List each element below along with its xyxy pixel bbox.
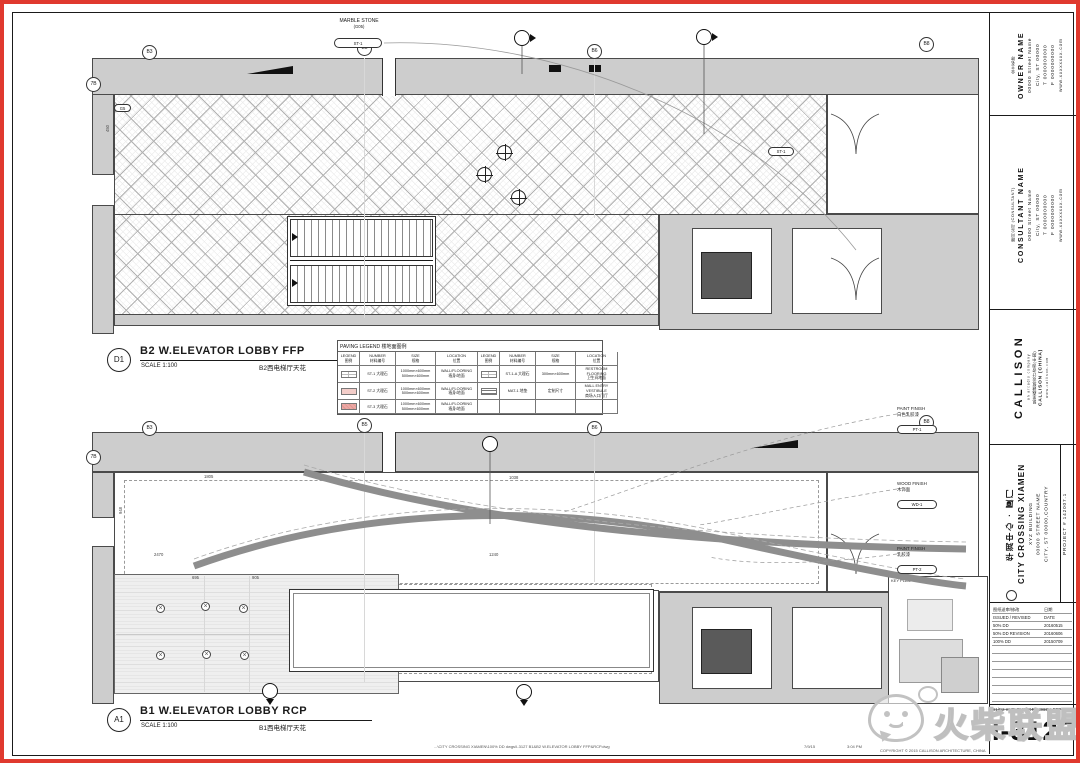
legend-header: LOCATION位置 [576,352,618,366]
floor-finish-tag: ST-1 [768,147,794,156]
section-marker [482,436,498,452]
vestibule-room [827,94,979,214]
legend-empty [500,400,536,414]
revision-row-empty [992,646,1072,654]
revision-row-empty [992,670,1072,678]
marble-note-line2: (G05) [304,24,414,29]
light-fixture-icon: × [156,651,165,660]
grid-bubble: B6 [587,44,602,59]
finish-tag-note: PAINT FINISH白色乳胶漆 [897,406,925,417]
revision-header-cn: 图纸送审/修改日期 [992,606,1072,614]
legend-swatch [478,383,500,400]
revision-row-empty [992,654,1072,662]
light-fixture-icon: × [201,602,210,611]
legend-number: ST-2 大理石 [360,383,396,400]
hatched-floor [114,94,827,216]
legend-size: 1000mm×600mm 500mm×600mm [396,400,436,414]
revision-row-empty [992,694,1072,702]
legend-number: MAT-1 地垫 [500,383,536,400]
elevation-marker [477,167,492,182]
elevator-door [549,65,561,72]
shaft-room [792,228,882,314]
section-marker [514,30,530,46]
legend-empty [536,400,576,414]
grid-line [364,58,365,318]
copyright: COPYRIGHT © 2015 CALLISON ARCHITECTURE, … [880,748,986,753]
section-marker-arrow [530,34,540,42]
plot-time: 3:04 PM [847,744,862,749]
project-number-block: PROJECT # 142007.1 [1062,450,1074,598]
legend-size: 300mm×600mm [536,366,576,383]
revision-row: 50% DD20160515 [992,622,1072,630]
file-path: ...\CITY CROSSING XIAMEN\100% DD dwgs\I-… [434,744,610,749]
revision-header-en: ISSUED / REVISEDDATE [992,614,1072,622]
drawing-subtitle-cn: B2西电梯厅天花 [259,362,306,372]
door-leaf [247,66,293,74]
wall-finish-tag: G5 [114,104,131,112]
grid-bubble: B3 [142,45,157,60]
ceiling-dashed-border [124,480,819,584]
finish-tag-capsule: PT-1 [897,425,937,434]
grid-bubble: B6 [587,421,602,436]
legend-empty [576,400,618,414]
section-marker-arrow [520,700,528,710]
shaft-pit [701,629,752,674]
north-arrow-icon [1006,590,1017,601]
sheet-number: I-3127 [992,716,1075,747]
legend-header: LOCATION位置 [436,352,478,366]
legend-table: LEGEND图例 NUMBER材料编号 SIZE规格 LOCATION位置 LE… [338,352,602,414]
sheet-title: B1/B2 W.ELEVATOR LOBBY FFP&RCP [992,707,1074,712]
section-marker-arrow [266,699,274,709]
titleblock-rule [989,115,1076,116]
marble-note: MARBLE STONE (G05) [304,18,414,29]
legend-empty [478,400,500,414]
plan-b2-ffp [92,48,979,340]
shaft-room [792,607,882,689]
legend-header: LEGEND图例 [478,352,500,366]
stair-direction-arrow [292,233,302,241]
legend-number: ST-3 大理石 [360,400,396,414]
opening-jamb [382,432,396,472]
stair-treads [290,219,433,257]
revision-table: 图纸送审/修改日期 ISSUED / REVISEDDATE 50% DD201… [992,606,1072,710]
revision-row: 100% DD20150709 [992,638,1072,646]
legend-size: 1000mm×600mm 500mm×600mm [396,383,436,400]
legend-location: RESTROOM FLOORING 卫生间地面 [576,366,618,383]
titleblock-rule [989,602,1076,603]
legend-location: WALL/FLOORING 墙身/地面 [436,366,478,383]
legend-size: 1000mm×600mm 500mm×600mm [396,366,436,383]
legend-header: SIZE规格 [396,352,436,366]
legend-number: ST-1 大理石 [360,366,396,383]
dimension: 695 [192,575,199,580]
dimension: 948 [118,507,123,514]
drawing-callout: A1 [107,708,131,732]
legend-number: ST-1-A 大理石 [500,366,536,383]
titleblock-rule [1060,444,1061,602]
legend-header: NUMBER材料编号 [500,352,536,366]
legend-location: WALL/FLOORING 墙身/地面 [436,400,478,414]
wall [114,314,659,326]
finish-tag-note: WOOD FINISH木饰面 [897,481,927,492]
section-marker [262,683,278,699]
stair [287,216,436,306]
legend-swatch [338,383,360,400]
elevator-door [589,65,601,72]
finish-tag-capsule: PT-2 [897,565,937,574]
door-opening [92,174,114,206]
stair-direction-arrow [292,279,302,287]
plot-date: 7/9/15 [804,744,815,749]
project-block: 华润中心 · 厦门 CITY CROSSING XIAMEN XYZ BUILD… [1004,450,1056,598]
legend-header: SIZE规格 [536,352,576,366]
dimension: 450 [105,125,110,132]
grid-bubble: B8 [919,37,934,52]
key-plan-shape [907,599,953,631]
grid-bubble: 7B [86,450,101,465]
drawing-subtitle-cn: B1西电梯厅天花 [259,722,306,732]
section-marker-arrow [712,33,722,41]
legend-location: WALL/FLOORING 墙身/地面 [436,383,478,400]
key-plan: KEY PLAN [888,576,988,704]
consultant-block: 顾问公司 (CONSULTANT) CONSULTANT NAME 0000 S… [1010,126,1072,304]
grid-bubble: B5 [357,418,372,433]
grid-bubble: B3 [142,421,157,436]
revision-row-empty [992,686,1072,694]
finish-tag-capsule: WD-1 [897,500,937,509]
shaft-pit [701,252,752,299]
light-fixture-icon: × [240,651,249,660]
drawing-sheet: B3 B5 B6 B8 7B MARBLE STONE (G05) ST-1 S… [0,0,1080,763]
drawing-scale: SCALE 1:100 [141,723,177,729]
wall [92,58,979,96]
drawing-title: B1 W.ELEVATOR LOBBY RCP [140,705,307,717]
wall [92,472,114,704]
revision-row-empty [992,662,1072,670]
titleblock-rule [989,309,1076,310]
callison-logo: CALLISON [1012,319,1026,435]
drawing-callout: D1 [107,348,131,372]
legend-header: NUMBER材料编号 [360,352,396,366]
key-plan-shape [941,657,979,693]
key-plan-label: KEY PLAN [889,577,987,584]
paving-legend: PAVING LEGEND 楼地面图例 LEGEND图例 NUMBER材料编号 … [337,340,603,415]
dimension: 2470 [154,552,163,557]
escalator-well [289,589,654,672]
legend-swatch [338,400,360,414]
plan-b1-rcp: × × × × × × [92,422,979,706]
section-marker [516,684,532,700]
legend-size: 定制尺寸 [536,383,576,400]
light-fixture-icon: × [202,650,211,659]
legend-swatch [478,366,500,383]
marble-tag: ST-1 [334,38,382,48]
elevation-marker [511,190,526,205]
revision-row-empty [992,678,1072,686]
dimension: 905 [252,575,259,580]
section-marker [696,29,712,45]
grid-line [594,432,595,582]
title-underline [140,720,372,721]
grid-bubble: 7B [86,77,101,92]
stair-treads [290,265,433,303]
light-fixture-icon: × [156,604,165,613]
elevation-marker [497,145,512,160]
wall [92,94,114,334]
legend-swatch [338,366,360,383]
revision-row: 50% DD REVISION20160606 [992,630,1072,638]
finish-tag-note: PAINT FINISH乳胶漆 [897,546,925,557]
light-fixture-icon: × [239,604,248,613]
opening-jamb [382,58,396,96]
firm-block: CALLISON an arcadis company 凯里森建筑设计咨询(中国… [1012,319,1068,435]
drawing-title: B2 W.ELEVATOR LOBBY FFP [140,345,305,357]
drawing-scale: SCALE 1:100 [141,363,177,369]
grid-line [594,58,595,218]
stair-rail [290,260,433,261]
owner-block: 业主名称 OWNER NAME 00000 Street Name City, … [1010,18,1072,112]
titleblock-divider [989,12,990,754]
legend-header: LEGEND图例 [338,352,360,366]
dimension: 1240 [489,552,498,557]
legend-title: PAVING LEGEND 楼地面图例 [338,341,602,352]
legend-location: MALL ENTRY VESTIBULE 商场入口门厅 [576,383,618,400]
grid-line [364,432,365,682]
dimension: 1805 [204,474,213,479]
door-leaf [752,440,798,448]
wall [92,432,979,472]
dimension: 1038 [509,475,518,480]
titleblock-rule [989,444,1076,445]
door-opening [92,517,114,547]
